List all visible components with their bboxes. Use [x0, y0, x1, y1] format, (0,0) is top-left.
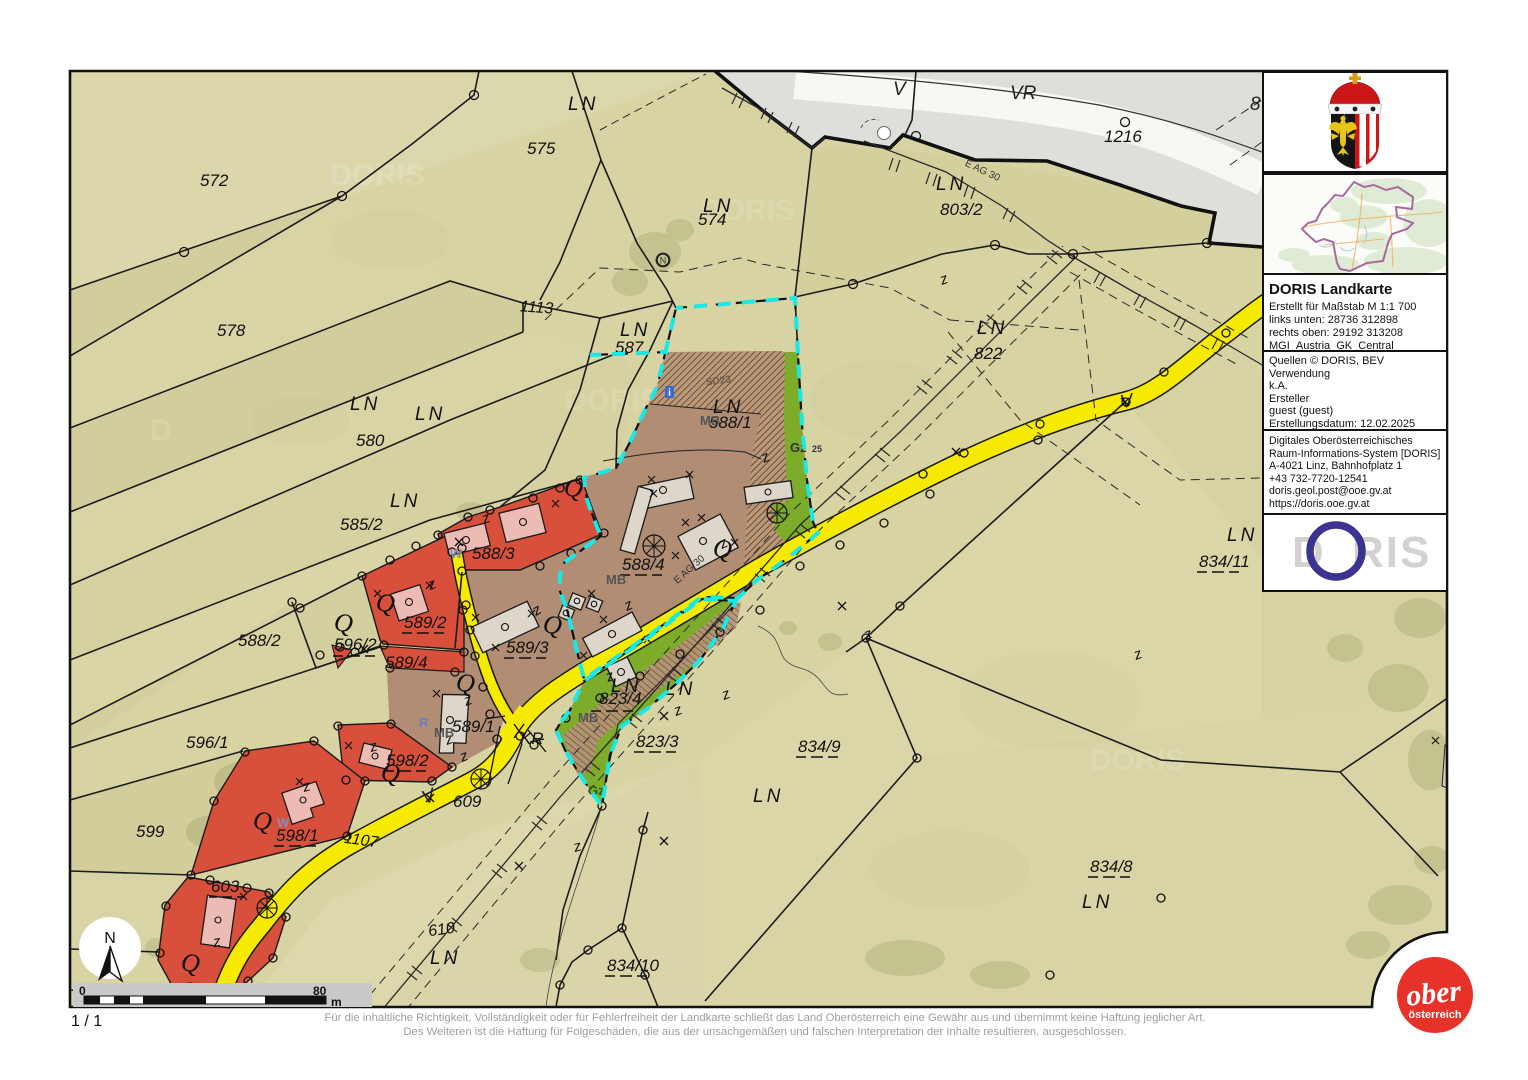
svg-text:LN: LN — [1082, 892, 1112, 913]
svg-text:D: D — [150, 414, 172, 447]
svg-text:R: R — [419, 715, 429, 730]
svg-text:LN: LN — [977, 318, 1007, 339]
svg-text:LN: LN — [1227, 525, 1257, 546]
svg-text:LN: LN — [430, 948, 460, 969]
svg-text:575: 575 — [527, 139, 556, 158]
svg-text:W: W — [450, 546, 463, 561]
svg-text:588/4: 588/4 — [622, 555, 665, 574]
svg-text:MB: MB — [578, 710, 598, 725]
svg-text:MB: MB — [606, 572, 626, 587]
svg-text:DORIS: DORIS — [330, 159, 425, 192]
svg-text:N: N — [104, 930, 116, 947]
svg-text:LN: LN — [611, 676, 641, 697]
svg-text:1113: 1113 — [519, 298, 553, 317]
svg-text:8: 8 — [1250, 94, 1261, 115]
svg-text:603: 603 — [211, 877, 240, 896]
svg-text:589/1: 589/1 — [452, 717, 495, 736]
svg-text:596/1: 596/1 — [186, 733, 229, 752]
svg-text:822: 822 — [974, 344, 1003, 363]
svg-text:LN: LN — [703, 196, 733, 217]
svg-text:598/2: 598/2 — [386, 751, 429, 770]
svg-text:N: N — [660, 256, 667, 266]
svg-text:834/10: 834/10 — [607, 956, 660, 975]
svg-text:596/2: 596/2 — [334, 635, 377, 654]
svg-text:834/8: 834/8 — [1090, 857, 1133, 876]
svg-text:589/4: 589/4 — [385, 653, 428, 672]
svg-text:823/3: 823/3 — [636, 732, 679, 751]
svg-text:588/3: 588/3 — [472, 544, 515, 563]
svg-text:580: 580 — [356, 431, 385, 450]
svg-text:803/2: 803/2 — [940, 200, 983, 219]
svg-text:LN: LN — [415, 404, 445, 425]
svg-text:österreich: österreich — [1408, 1009, 1461, 1021]
svg-text:MB: MB — [700, 413, 720, 428]
svg-text:609: 609 — [453, 792, 482, 811]
svg-text:LN: LN — [568, 94, 598, 115]
svg-text:LN: LN — [936, 174, 966, 195]
svg-text:LN: LN — [390, 491, 420, 512]
svg-text:589/2: 589/2 — [404, 613, 447, 632]
svg-text:589/3: 589/3 — [506, 638, 549, 657]
svg-text:585/2: 585/2 — [340, 515, 383, 534]
svg-text:834/9: 834/9 — [798, 737, 841, 756]
svg-text:578: 578 — [217, 321, 246, 340]
svg-text:ober: ober — [1404, 974, 1462, 1013]
svg-text:572: 572 — [200, 171, 229, 190]
svg-text:LN: LN — [753, 786, 783, 807]
svg-text:834/11: 834/11 — [1199, 552, 1250, 571]
svg-text:588/2: 588/2 — [238, 631, 281, 650]
svg-text:W: W — [277, 815, 290, 830]
svg-text:25: 25 — [812, 444, 822, 454]
svg-text:MB: MB — [434, 725, 454, 740]
svg-text:m: m — [331, 995, 342, 1009]
svg-text:VR: VR — [1010, 83, 1037, 104]
svg-text:LN: LN — [350, 394, 380, 415]
svg-text:599: 599 — [136, 822, 165, 841]
svg-text:i: i — [668, 388, 671, 399]
svg-text:1216: 1216 — [1104, 127, 1142, 146]
svg-text:LN: LN — [620, 320, 650, 341]
